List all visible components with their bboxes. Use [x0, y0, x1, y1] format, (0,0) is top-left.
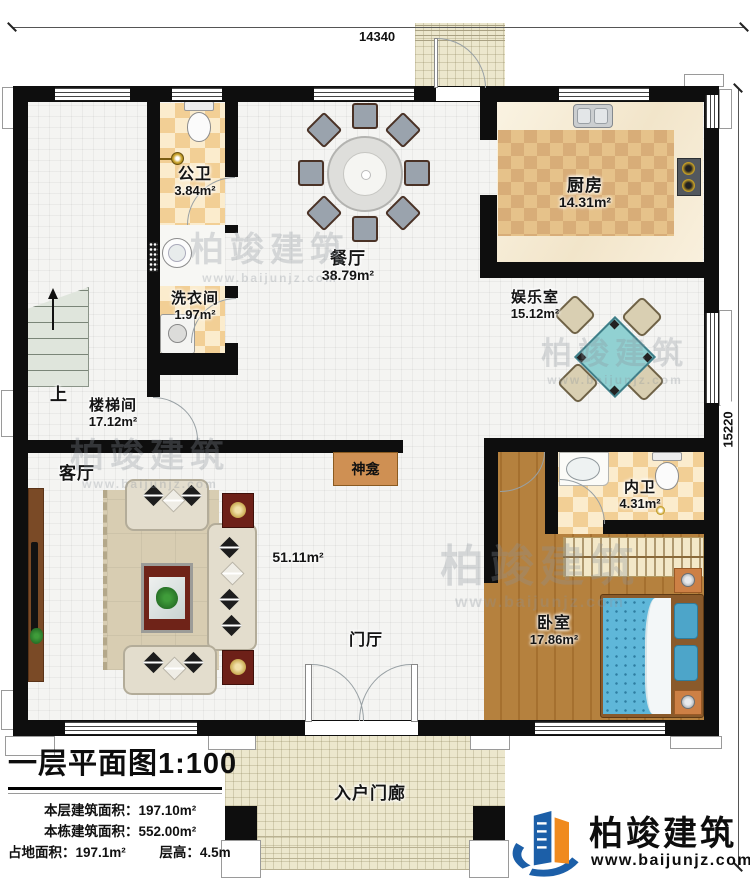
- window-kitchen-top: [559, 87, 649, 101]
- bed-pillow: [674, 603, 698, 639]
- window-dining: [314, 87, 414, 101]
- shrine: 神龛: [333, 452, 398, 486]
- wall-bedroom-left: [484, 438, 498, 583]
- mirror-strip: [149, 242, 158, 272]
- dining-chair-icon: [404, 160, 430, 186]
- toilet-icon: [184, 101, 214, 111]
- room-label-woshi: 卧室 17.86m²: [520, 615, 588, 647]
- front-door-right-leaf: [411, 664, 418, 722]
- dining-chair-icon: [352, 216, 378, 242]
- porch-column: [225, 806, 257, 840]
- kitchen-sink-basin: [577, 108, 591, 124]
- dim-line-right: [738, 88, 739, 868]
- bed-sheet: [645, 598, 671, 714]
- dining-chair-icon: [298, 160, 324, 186]
- window-bedroom: [535, 721, 665, 735]
- stat-floor-area: 本层建筑面积：197.10m²: [44, 800, 224, 821]
- window-living: [65, 721, 197, 735]
- room-label-menting: 门厅: [338, 632, 394, 650]
- wall-left: [13, 86, 28, 736]
- floor-plan: 公卫 3.84m² 洗衣间 1.97m² 餐厅 38.79m² 厨房 14.31…: [0, 0, 750, 891]
- dim-line-top: [12, 27, 745, 28]
- room-label-yuleshi: 娱乐室 15.12m²: [496, 290, 574, 321]
- back-porch-steps: [415, 23, 505, 41]
- wall-kitchen-left-a: [480, 102, 497, 140]
- washing-machine-door: [168, 324, 187, 343]
- room-label-canting: 餐厅 38.79m²: [308, 249, 388, 284]
- room-label-gongwei: 公卫 3.84m²: [160, 166, 230, 198]
- front-porch-steps: [225, 836, 505, 870]
- wall-bath2-bottom-b: [603, 520, 719, 534]
- stairs-up-arrowhead: [48, 288, 58, 299]
- shrine-label: 神龛: [352, 461, 380, 477]
- bed-pillow: [674, 645, 698, 681]
- side-table-medallion: [230, 659, 246, 675]
- room-label-loutijian: 楼梯间 17.12m²: [76, 398, 150, 429]
- wall-kitchen-bottom: [480, 262, 719, 278]
- title-rule-thick: [8, 787, 222, 790]
- dining-table-center: [361, 170, 371, 180]
- window-sill: [670, 736, 722, 749]
- room-label-neiwei: 内卫 4.31m²: [608, 480, 672, 511]
- wall-bath1-right-b: [225, 225, 238, 233]
- room-label-keting: 客厅: [52, 464, 102, 483]
- company-logo-icon: [505, 798, 585, 880]
- room-label-rumenlang: 入户门廊: [320, 784, 420, 803]
- dim-height-label: 15220: [721, 402, 736, 458]
- window-kitchen-right: [705, 95, 719, 128]
- label-up: 上: [44, 385, 74, 404]
- window-sill: [719, 310, 732, 406]
- tv-icon: [31, 542, 38, 640]
- plant-icon: [156, 587, 178, 609]
- room-label-xiyijian: 洗衣间 1.97m²: [156, 291, 234, 322]
- title-block: 一层平面图1:100 本层建筑面积：197.10m² 本栋建筑面积：552.00…: [8, 740, 224, 863]
- dining-chair-icon: [352, 103, 378, 129]
- window-sill: [719, 89, 732, 129]
- window-bath1: [172, 87, 222, 101]
- dim-width-label: 14340: [355, 29, 399, 44]
- wall-lamp-icon: [171, 152, 184, 165]
- nightstand-lamp: [681, 573, 695, 587]
- stat-building-area: 本栋建筑面积：552.00m²: [44, 821, 224, 842]
- porch-column: [473, 806, 505, 840]
- company-logo: 柏竣建筑 www.baijunjz.com: [505, 796, 747, 882]
- nightstand-lamp: [681, 695, 695, 709]
- title-rule-thin: [8, 793, 222, 794]
- front-door-left-leaf: [305, 664, 312, 722]
- porch-column-sill: [469, 840, 509, 878]
- toilet-bowl: [187, 112, 211, 142]
- stairs-up-arrow: [52, 296, 54, 330]
- room-label-chufang: 厨房 14.31m²: [543, 176, 627, 211]
- window-sill: [470, 734, 510, 750]
- wardrobe-rod: [563, 556, 704, 558]
- wall-laundry-bottom: [147, 353, 238, 375]
- basin-inner: [168, 244, 186, 262]
- label-keting-area: 51.11m²: [258, 550, 338, 566]
- kitchen-sink-basin: [594, 108, 608, 124]
- window-gameroom: [705, 313, 719, 403]
- wall-bath2-bottom-a: [545, 520, 558, 534]
- basin-icon: [566, 457, 600, 481]
- window-stairwell: [55, 87, 130, 101]
- company-website: www.baijunjz.com: [591, 852, 750, 870]
- opening-front-door: [305, 721, 418, 735]
- back-door-leaf: [434, 38, 438, 88]
- wall-right: [704, 86, 719, 736]
- stove-burner: [682, 162, 695, 175]
- stove-burner: [682, 179, 695, 192]
- wall-bedroom-top: [484, 438, 719, 452]
- company-name: 柏竣建筑: [589, 806, 737, 855]
- stat-footprint-and-height: 占地面积：197.1m² 层高：4.5m: [8, 842, 224, 863]
- opening-back-door: [436, 87, 480, 101]
- side-table-medallion: [230, 502, 246, 518]
- plan-title: 一层平面图1:100: [8, 740, 224, 782]
- toilet-icon: [652, 452, 682, 461]
